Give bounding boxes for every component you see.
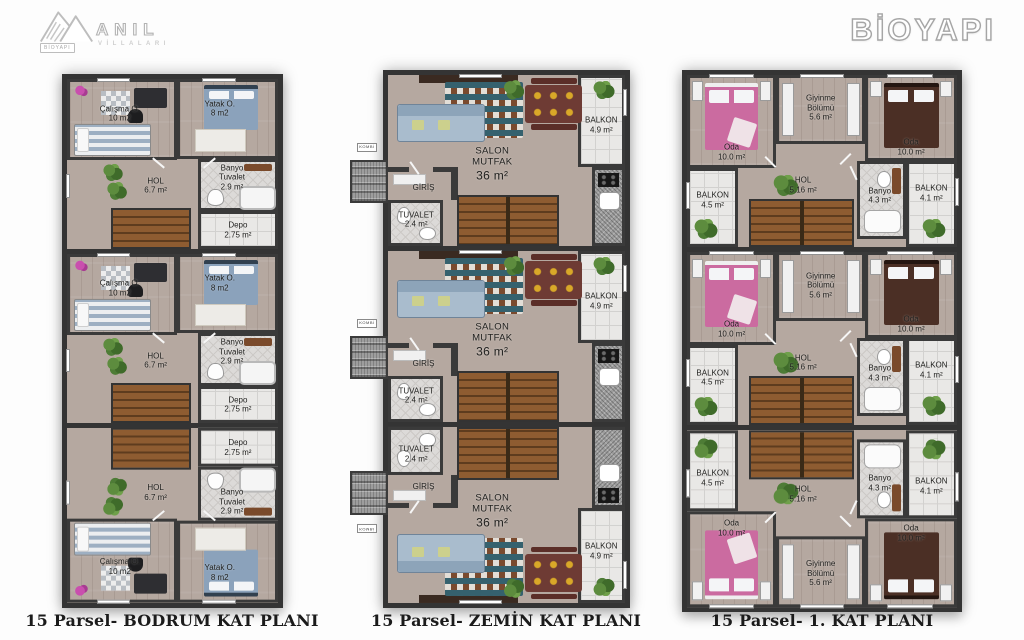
plan-sheet: BİOYAPI ANIL VİLLALARI BİOYAPI Çalışma O… [0,0,1024,640]
bathtub [864,210,902,233]
stairs [457,427,559,480]
room-area: 6.7 m² [144,493,167,503]
room-label: Çalışma O. [100,104,140,114]
bed [74,299,151,331]
nightstand [870,81,882,97]
room-label: SALON MUTFAK [461,145,523,168]
window [887,74,933,78]
closet [847,544,859,599]
room-area: 2.9 m² [209,357,255,367]
window [686,359,690,387]
room-area: 36 m² [461,344,523,358]
closet [847,260,859,313]
room-label: Giyinme Bölümü [798,558,844,577]
window [459,74,502,78]
window [623,89,627,116]
door-swing [409,500,419,513]
stairs [749,376,854,424]
room-area: 4.1 m² [910,370,952,380]
room-label: Depo [224,395,251,405]
nightstand [940,259,952,275]
apartment-unit: Çalışma O.10 m2 Yatak O.8 m2 Banyo Tuval… [67,254,278,429]
plant [504,256,525,277]
caption-zemin: 15 Parsel- ZEMİN KAT PLANI [356,611,656,630]
balkon-left: BALKON4.5 m² [687,430,738,512]
nightstand [870,259,882,275]
brand-text: ANIL [96,20,160,40]
room-banyo: Banyo4.3 m² [857,439,906,519]
room-label: SALON MUTFAK [461,493,523,516]
plant [593,257,616,276]
mountain-roof-icon [36,6,98,46]
apartment-unit: Çalışma O.10 m2 Yatak O.8 m2 Banyo Tuval… [67,79,278,254]
room-label: Banyo Tuvalet [209,338,255,357]
room-area: 4.9 m² [580,301,622,311]
rug [195,304,247,327]
room-tuvalet: TUVALET2.4 m² [388,427,443,475]
room-giyinme: Giyinme Bölümü5.6 m² [776,536,865,607]
plant [593,577,616,597]
dining-table [525,261,582,299]
window [955,356,959,384]
room-area: 4.9 m² [580,125,622,135]
room-label: BALKON [910,361,952,371]
room-area: 4.5 m² [692,200,734,210]
room-area: 10.0 m² [898,324,925,334]
window [202,600,236,604]
room-banyo: Banyo Tuvalet2.9 m² [198,159,278,212]
bioyapi-badge: BİOYAPI [40,43,75,53]
plant [107,477,128,496]
window [686,182,690,210]
door-swing [840,153,852,165]
nightstand [760,581,772,601]
plant [694,437,719,458]
window [66,481,70,505]
flower-plant [74,85,89,97]
window [955,472,959,500]
room-calisma: Çalışma O.10 m2 [67,79,177,160]
window [887,251,933,255]
room-label: Depo [224,220,251,230]
window [97,600,131,604]
plant [922,219,947,240]
room-label: Giyinme Bölümü [798,94,844,113]
room-yatak: Yatak O.8 m2 [177,79,278,159]
nightstand [940,81,952,97]
stove [598,488,620,503]
room-banyo: Banyo4.3 m² [857,161,906,239]
dining-table [525,85,582,123]
room-giyinme: Giyinme Bölümü5.6 m² [776,252,865,321]
bathroom-vanity [892,168,901,194]
entry-steps [350,336,388,379]
room-label: Banyo [868,363,891,373]
kitchen-counter [592,343,625,422]
plant [593,81,616,100]
room-banyo: Banyo Tuvalet2.9 m² [198,467,278,521]
room-depo: Depo2.75 m² [198,386,278,423]
balkon-right: BALKON4.1 m² [906,161,957,247]
plant [103,164,124,183]
room-area: 2.75 m² [224,230,251,240]
plant [694,219,719,240]
dining-table [525,554,582,593]
bed [705,530,758,599]
room-label: BALKON [580,292,622,302]
closet [782,544,794,599]
room-label: Oda [898,523,925,533]
room-area: 5.6 m² [798,578,844,588]
room-depo: Depo2.75 m² [198,428,278,466]
room-area: 4.5 m² [692,478,734,488]
plant [103,338,124,357]
kombi-label: KOMBİ [359,320,374,325]
plant [922,396,947,417]
window [709,74,755,78]
room-area: 36 m² [461,516,523,530]
closet [782,83,794,136]
door-swing [409,338,419,351]
sink [877,491,891,508]
room-area: 8 m2 [204,573,235,583]
room-giyinme: Giyinme Bölümü5.6 m² [776,75,865,144]
room-label: Çalışma O. [100,279,140,289]
room-area: 6.7 m² [144,361,167,371]
room-area: 4.9 m² [580,551,622,561]
room-area: 2.75 m² [224,448,251,458]
room-label: BALKON [910,476,952,486]
nightstand [692,259,704,278]
window [97,78,131,82]
plant [922,438,947,459]
room-oda-left: Oda10.0 m² [687,511,776,607]
room-label: Yatak O. [204,563,235,573]
room-area: 4.1 m² [910,193,952,203]
room-area: 10.0 m² [898,533,925,543]
nightstand [870,584,882,601]
room-oda-right: Oda10.0 m² [865,252,957,338]
apartment-unit: BALKON4.9 m² TUVALET2.4 m² GİR [388,427,625,603]
window [66,349,70,373]
room-area: 2.9 m² [209,182,255,192]
room-area: 2.4 m² [399,220,434,230]
window [800,251,843,255]
door-swing [840,330,852,342]
window [623,561,627,589]
closet [782,260,794,313]
window [623,265,627,292]
room-area: 2.75 m² [224,405,251,415]
window [800,604,843,608]
window [459,250,502,254]
room-area: 36 m² [461,168,523,182]
room-area: 8 m2 [204,283,235,293]
room-label: Banyo Tuvalet [209,163,255,182]
balkon-right: BALKON4.1 m² [906,338,957,424]
plant [103,496,124,515]
bed [705,261,758,328]
balkon: BALKON4.9 m² [578,251,625,343]
room-label: HOL [790,353,817,363]
room-label: HOL [144,351,167,361]
caption-bodrum: 15 Parsel- BODRUM KAT PLANI [22,611,322,630]
floor-plan-zemin: BALKON4.9 m² TUVALET2.4 m² GİR [383,70,630,608]
room-banyo: Banyo4.3 m² [857,338,906,416]
balkon-right: BALKON4.1 m² [906,430,957,519]
balkon-left: BALKON4.5 m² [687,345,738,424]
room-calisma: Çalışma O.10 m2 [67,519,177,603]
kitchen-sink [599,368,620,386]
sofa [397,534,484,573]
room-area: 8 m2 [204,109,235,119]
room-label: BALKON [910,183,952,193]
room-label: Banyo [868,186,891,196]
room-calisma: Çalışma O.10 m2 [67,254,177,335]
room-label: TUVALET [399,386,434,396]
rug [195,528,247,551]
window [202,78,236,82]
nightstand [692,581,704,601]
room-label: Oda [898,315,925,325]
stairs [111,383,191,424]
wall [388,343,409,348]
balkon: BALKON4.9 m² [578,75,625,167]
room-oda-right: Oda10.0 m² [865,75,957,161]
apartment-unit: Oda10.0 m² Giyinme Bölümü5.6 m² Oda10.0 … [687,75,957,252]
room-tuvalet: TUVALET2.4 m² [388,376,443,422]
nightstand [760,259,772,278]
room-area: 5.16 m² [790,494,817,504]
sofa [397,104,484,142]
bathroom-vanity [892,484,901,511]
stairs [457,195,559,246]
room-label: Yatak O. [204,99,235,109]
apartment-unit: BALKON4.9 m² TUVALET2.4 m² GİR [388,251,625,427]
room-area: 10 m2 [100,114,140,124]
room-label: Çalışma O. [100,558,140,568]
room-label: BALKON [692,368,734,378]
apartment-unit: BALKON4.9 m² TUVALET2.4 m² GİR [388,75,625,251]
apartment-unit: Oda10.0 m² Giyinme Bölümü5.6 m² Oda10.0 … [687,430,957,607]
kitchen-counter [592,167,625,246]
room-area: 10.0 m² [898,147,925,157]
bathtub [864,387,902,410]
nightstand [940,584,952,601]
plant [107,182,128,201]
room-area: 5.16 m² [790,363,817,373]
door-swing [840,515,852,527]
apartment-unit: Çalışma O.10 m2 Yatak O.8 m2 Banyo Tuval… [67,428,278,603]
sofa [397,280,484,318]
balkon: BALKON4.9 m² [578,508,625,603]
room-label: HOL [144,483,167,493]
room-yatak: Yatak O.8 m2 [177,521,278,603]
stairs [111,208,191,249]
entry-steps [350,471,388,515]
room-banyo: Banyo Tuvalet2.9 m² [198,333,278,386]
room-label: Banyo Tuvalet [209,487,255,506]
door-swing [409,162,419,175]
kombi-tag: KOMBİ [357,319,376,328]
kombi-label: KOMBİ [359,144,374,149]
bioyapi-logo: BİOYAPI [850,12,996,48]
kitchen-sink [599,192,620,210]
desk [134,574,167,594]
stairs [457,371,559,422]
room-area: 2.9 m² [209,506,255,516]
room-label: HOL [790,484,817,494]
window [686,469,690,497]
room-label: BALKON [580,541,622,551]
room-area: 2.4 m² [399,396,434,406]
stove [598,173,620,188]
anil-villalari-logo: BİOYAPI ANIL VİLLALARI [18,4,218,56]
bathroom-vanity [892,346,901,372]
stairs [749,199,854,247]
kitchen-counter [592,427,625,508]
room-area: 10.0 m² [718,528,745,538]
room-depo: Depo2.75 m² [198,211,278,248]
room-area: 2.4 m² [399,454,434,464]
room-area: 10.0 m² [718,152,745,162]
apartment-unit: Oda10.0 m² Giyinme Bölümü5.6 m² Oda10.0 … [687,252,957,429]
kombi-tag: KOMBİ [357,143,376,152]
room-area: 4.1 m² [910,486,952,496]
window [887,604,933,608]
room-label: TUVALET [399,210,434,220]
plant [107,357,128,376]
kombi-tag: KOMBİ [357,524,376,533]
window [800,74,843,78]
window [202,253,236,257]
room-label: HOL [790,176,817,186]
floor-plan-kat1: Oda10.0 m² Giyinme Bölümü5.6 m² Oda10.0 … [682,70,962,612]
wall [388,503,409,508]
window [66,174,70,198]
bed [74,124,151,156]
plant [504,577,525,598]
room-label: GİRİŞ [413,183,435,193]
room-label: Giyinme Bölümü [798,271,844,290]
room-label: GİRİŞ [413,359,435,369]
room-tuvalet: TUVALET2.4 m² [388,200,443,246]
room-label: BALKON [692,468,734,478]
window [709,251,755,255]
room-area: 10 m2 [100,288,140,298]
stove [598,349,620,364]
entry-steps [350,160,388,203]
room-area: 4.3 m² [868,373,891,383]
room-oda-right: Oda10.0 m² [865,518,957,607]
plant [694,397,719,418]
room-label: Yatak O. [204,274,235,284]
room-area: 6.7 m² [144,186,167,196]
caption-kat1: 15 Parsel- 1. KAT PLANI [672,611,972,630]
room-label: Oda [718,142,745,152]
nightstand [692,81,704,100]
brand-subtitle: VİLLALARI [98,41,170,47]
rug [195,129,247,152]
room-area: 4.3 m² [868,196,891,206]
room-label: BALKON [692,191,734,201]
stairs [749,430,854,480]
room-label: BALKON [580,116,622,126]
closet [847,83,859,136]
room-label: GİRİŞ [413,482,435,492]
kombi-label: KOMBİ [359,527,374,532]
bed [74,523,151,556]
flower-plant [74,260,89,272]
nightstand [760,81,772,100]
room-label: Oda [898,137,925,147]
room-area: 10 m2 [100,567,140,577]
flower-plant [74,584,89,596]
room-yatak: Yatak O.8 m2 [177,254,278,334]
balkon-left: BALKON4.5 m² [687,168,738,247]
window [97,253,131,257]
room-area: 4.5 m² [692,378,734,388]
window [459,600,502,604]
floor-plan-bodrum: Çalışma O.10 m2 Yatak O.8 m2 Banyo Tuval… [62,74,283,608]
kitchen-sink [599,464,620,482]
room-area: 10.0 m² [718,329,745,339]
room-area: 5.6 m² [798,113,844,123]
plant [504,80,525,101]
window [709,604,755,608]
bed [705,83,758,150]
room-label: Banyo [868,473,891,483]
room-label: HOL [144,176,167,186]
room-area: 5.6 m² [798,290,844,300]
room-label: Oda [718,518,745,528]
room-area: 4.3 m² [868,483,891,493]
room-label: Oda [718,320,745,330]
room-label: TUVALET [399,445,434,455]
room-area: 5.16 m² [790,185,817,195]
stairs [111,428,191,470]
room-oda-left: Oda10.0 m² [687,252,776,345]
room-oda-left: Oda10.0 m² [687,75,776,168]
room-label: Depo [224,438,251,448]
wall [388,167,409,172]
room-label: SALON MUTFAK [461,321,523,344]
bathtub [864,444,902,468]
window [955,178,959,206]
